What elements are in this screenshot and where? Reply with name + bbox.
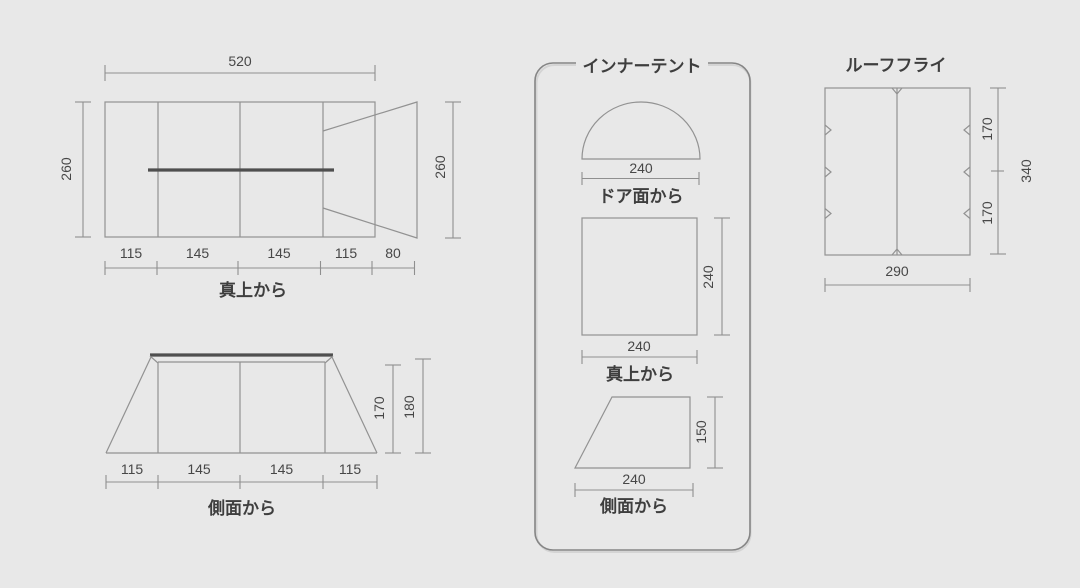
dim-side-height-180: 180: [401, 359, 431, 453]
side-view-segment-2: 145: [187, 461, 211, 477]
dim-depth-right-260: 260: [432, 102, 461, 238]
inner-tent-door-view: 240 ドア面から: [582, 102, 700, 206]
inner-tent-side-height-label: 150: [693, 420, 709, 444]
roof-fly-lower-height-label: 170: [979, 201, 995, 225]
top-view-segment-5: 80: [385, 245, 401, 261]
inner-tent-top-depth-label: 240: [700, 265, 716, 289]
tent-side-view: 170 180 115 145 145 115 側面から: [106, 355, 431, 518]
door-flap-outline: [323, 102, 417, 238]
roof-fly-upper-height-label: 170: [979, 117, 995, 141]
side-view-inner-height-label: 170: [371, 396, 387, 420]
tent-dimension-diagram: 520 260 260 115 145 145 1: [0, 0, 1080, 588]
roof-fly-total-height-label: 340: [1018, 159, 1034, 183]
inner-tent-side-width-label: 240: [622, 471, 646, 487]
side-view-caption: 側面から: [207, 498, 276, 518]
roof-fly-title: ルーフフライ: [846, 56, 947, 75]
inner-tent-top-view-caption: 真上から: [606, 364, 674, 384]
top-view-segment-4: 115: [335, 245, 358, 261]
dim-side-height-170: 170: [371, 365, 401, 453]
roof-fly-view: ルーフフライ 170 340 170 290: [825, 56, 1034, 292]
dim-roof-fly-heights: 170 340 170: [979, 88, 1034, 254]
tent-side-view-outline: [106, 356, 377, 453]
side-view-segment-1: 115: [121, 461, 144, 477]
inner-tent-panel: インナーテント 240 ドア面から 240 240 真上から: [535, 55, 751, 552]
dim-top-view-segments: 115 145 145 115 80: [105, 245, 415, 275]
inner-tent-side-outline: [575, 397, 690, 468]
inner-tent-title: インナーテント: [583, 57, 702, 76]
inner-tent-door-view-caption: ドア面から: [599, 187, 684, 206]
top-view-segment-1: 115: [120, 245, 143, 261]
top-view-depth-right-label: 260: [432, 155, 448, 179]
top-view-depth-left-label: 260: [58, 157, 74, 181]
side-view-total-height-label: 180: [401, 395, 417, 419]
top-view-segment-2: 145: [186, 245, 210, 261]
top-view-segment-3: 145: [267, 245, 291, 261]
side-view-segment-3: 145: [270, 461, 294, 477]
inner-tent-side-view-caption: 側面から: [599, 496, 668, 516]
dim-width-520: 520: [105, 53, 375, 81]
inner-tent-top-view: 240 240 真上から: [582, 218, 730, 384]
top-view-width-label: 520: [228, 53, 252, 69]
inner-tent-top-width-label: 240: [627, 338, 651, 354]
side-view-segment-4: 115: [339, 461, 362, 477]
inner-tent-dome-outline: [582, 102, 700, 159]
inner-tent-door-width-label: 240: [629, 160, 653, 176]
dim-side-view-segments: 115 145 145 115: [106, 461, 377, 489]
tent-top-view: 520 260 260 115 145 145 1: [58, 53, 461, 300]
dim-roof-fly-width: 290: [825, 263, 970, 292]
inner-tent-side-view: 150 240 側面から: [575, 397, 723, 516]
inner-tent-top-outline: [582, 218, 697, 335]
roof-fly-width-label: 290: [885, 263, 909, 279]
top-view-caption: 真上から: [219, 280, 287, 300]
dim-depth-left-260: 260: [58, 102, 91, 237]
